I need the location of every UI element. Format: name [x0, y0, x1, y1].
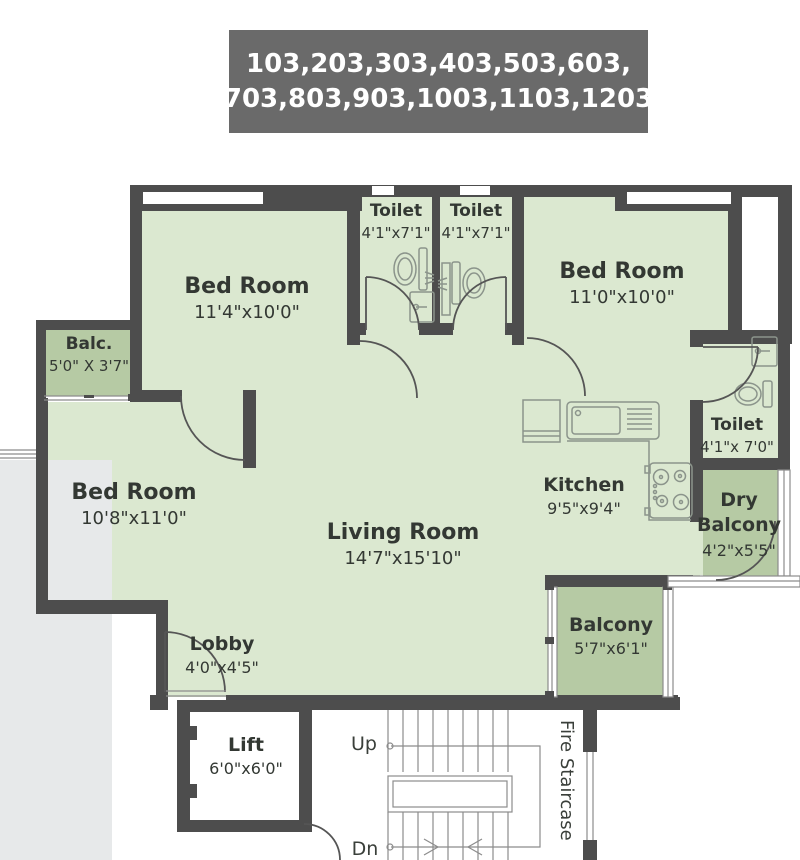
- room-label-balc-left: Balc. 5'0" X 3'7": [49, 334, 129, 375]
- railing-post: [128, 394, 134, 401]
- room-label-toilet-right: Toilet 4'1"x 7'0": [700, 415, 774, 456]
- room-name: Bed Room: [559, 259, 684, 284]
- room-name: Bed Room: [71, 480, 196, 505]
- room-name: Toilet: [361, 201, 430, 221]
- room-name: Dry Balcony: [689, 488, 789, 538]
- room-label-kitchen: Kitchen 9'5"x9'4": [543, 474, 625, 518]
- wall: [778, 330, 790, 470]
- floor-plan: 103,203,303,403,503,603, 703,803,903,100…: [0, 0, 800, 860]
- wall: [583, 710, 597, 754]
- room-name: Toilet: [700, 415, 774, 435]
- room-dim: 4'2"x5'5": [689, 541, 789, 560]
- adjacent-railing: [0, 450, 36, 458]
- wall: [728, 197, 742, 343]
- vent-window: [460, 186, 490, 195]
- wall: [36, 320, 136, 330]
- room-label-bedroom-top-left: Bed Room 11'4"x10'0": [184, 274, 309, 323]
- wall: [347, 323, 366, 335]
- room-label-toilet-b: Toilet 4'1"x7'1": [441, 201, 510, 242]
- room-dim: 4'0"x4'5": [185, 658, 259, 677]
- window: [627, 192, 731, 204]
- room-label-balcony: Balcony 5'7"x6'1": [569, 614, 653, 658]
- duct-shaft: [742, 197, 778, 330]
- railing-post: [545, 583, 554, 590]
- room-name: Toilet: [441, 201, 510, 221]
- unit-numbers-banner: 103,203,303,403,503,603, 703,803,903,100…: [229, 30, 648, 133]
- wall: [150, 695, 166, 710]
- room-label-bedroom-left: Bed Room 10'8"x11'0": [71, 480, 196, 529]
- lift-door-jamb: [190, 784, 197, 798]
- stair-landing-inner: [393, 781, 507, 807]
- railing-post: [84, 395, 94, 398]
- room-label-living-room: Living Room 14'7"x15'10": [327, 520, 480, 569]
- room-name: Bed Room: [184, 274, 309, 299]
- wall: [778, 185, 792, 344]
- doorway-fill: [512, 345, 524, 396]
- room-dim: 11'4"x10'0": [184, 302, 309, 323]
- room-dim: 6'0"x6'0": [209, 759, 283, 778]
- wall: [36, 320, 46, 402]
- doorway-fill: [182, 390, 243, 404]
- wall: [690, 330, 703, 347]
- doorway-fill: [347, 345, 360, 398]
- room-dim: 4'1"x 7'0": [700, 438, 774, 456]
- wall: [583, 838, 597, 860]
- unit-numbers-line1: 103,203,303,403,503,603,: [246, 47, 631, 82]
- room-name: Balc.: [49, 334, 129, 354]
- wall: [347, 185, 360, 345]
- railing-post: [545, 637, 554, 644]
- room-label-lobby: Lobby 4'0"x4'5": [185, 633, 259, 677]
- wall: [419, 323, 440, 335]
- room-name: Lift: [209, 734, 283, 756]
- room-name: Kitchen: [543, 474, 625, 496]
- room-dim: 9'5"x9'4": [543, 499, 625, 518]
- room-label-lift: Lift 6'0"x6'0": [209, 734, 283, 778]
- room-dim: 5'0" X 3'7": [49, 357, 129, 375]
- wall: [36, 398, 48, 612]
- stair-down-label: Dn: [352, 838, 379, 860]
- room-label-toilet-a: Toilet 4'1"x7'1": [361, 201, 430, 242]
- fire-staircase-label: Fire Staircase: [541, 700, 577, 860]
- wall: [299, 700, 312, 832]
- window: [143, 192, 263, 204]
- room-name: Living Room: [327, 520, 480, 545]
- wall: [177, 820, 312, 832]
- vent-window: [372, 186, 394, 195]
- lift-door-jamb: [190, 726, 197, 740]
- wall: [505, 323, 524, 335]
- room-label-bedroom-right: Bed Room 11'0"x10'0": [559, 259, 684, 308]
- room-dim: 14'7"x15'10": [327, 548, 480, 569]
- room-label-dry-balcony: Dry Balcony 4'2"x5'5": [689, 488, 789, 560]
- staircase-window: [583, 752, 597, 840]
- wall: [703, 458, 790, 470]
- room-dim: 4'1"x7'1": [441, 224, 510, 242]
- wall: [243, 390, 256, 468]
- wall: [130, 185, 142, 402]
- wall: [512, 185, 524, 345]
- wall: [432, 197, 440, 323]
- room-dim: 4'1"x7'1": [361, 224, 430, 242]
- wall: [136, 390, 182, 402]
- railing-post: [38, 394, 44, 401]
- wall: [177, 700, 312, 712]
- room-dim: 5'7"x6'1": [569, 639, 653, 658]
- doorway-fill: [690, 350, 703, 400]
- passage-floor: [355, 330, 524, 400]
- wall: [177, 700, 190, 832]
- wall: [36, 600, 168, 614]
- railing-post: [545, 691, 554, 698]
- wall: [440, 323, 453, 335]
- stair-up-label: Up: [351, 733, 377, 755]
- room-name: Lobby: [185, 633, 259, 655]
- room-dim: 10'8"x11'0": [71, 508, 196, 529]
- room-dim: 11'0"x10'0": [559, 287, 684, 308]
- wall: [156, 600, 168, 710]
- room-name: Balcony: [569, 614, 653, 636]
- unit-numbers-line2: 703,803,903,1003,1103,1203: [224, 82, 653, 117]
